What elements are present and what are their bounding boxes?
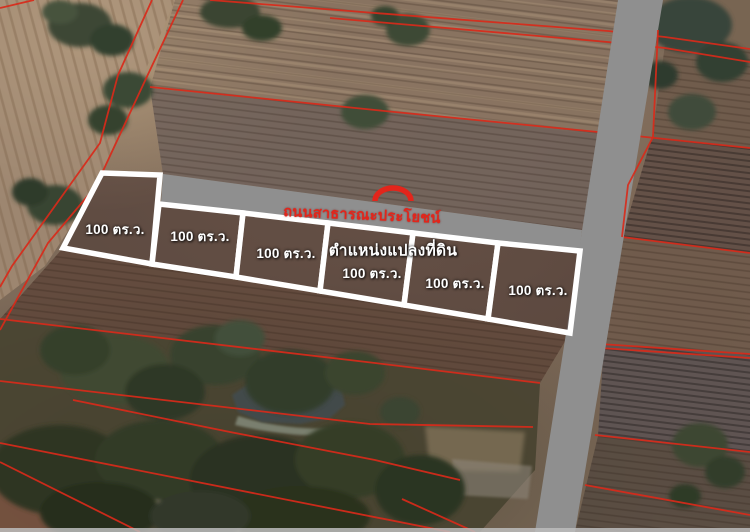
map-graphics	[0, 0, 750, 532]
plot-outline-5	[404, 233, 498, 319]
plot-outline-3	[236, 213, 328, 291]
plot-outline-2	[152, 204, 243, 277]
plot-outline-6	[488, 243, 580, 333]
satellite-map: 100 ตร.ว. 100 ตร.ว. 100 ตร.ว. 100 ตร.ว. …	[0, 0, 750, 532]
imagery-edge-bar	[0, 528, 750, 532]
plot-outline-4	[320, 223, 413, 305]
